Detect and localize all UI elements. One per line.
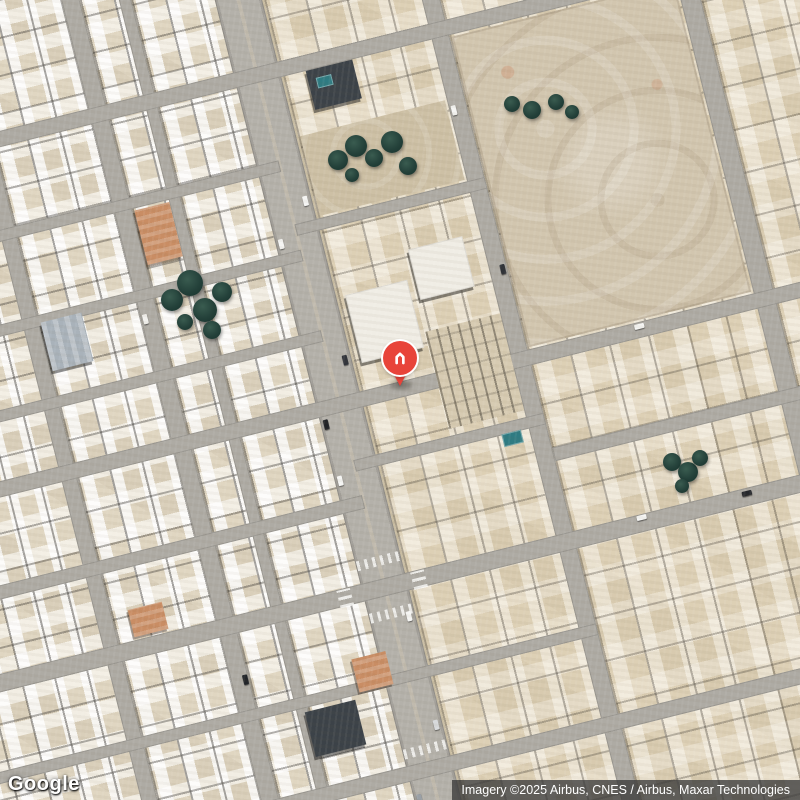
crosswalk — [369, 603, 414, 623]
google-logo[interactable]: Google — [8, 773, 80, 796]
marker-circle — [383, 341, 417, 375]
car — [322, 419, 329, 430]
building-roof-salmon — [351, 651, 393, 692]
vacant-sand-lot — [452, 0, 752, 347]
car — [141, 314, 148, 325]
car — [416, 794, 423, 800]
crosswalk — [356, 551, 401, 571]
attribution-text: Imagery ©2025 Airbus, CNES / Airbus, Max… — [461, 780, 790, 800]
attribution-bar: Imagery ©2025 Airbus, CNES / Airbus, Max… — [452, 780, 800, 800]
car — [450, 105, 457, 116]
map-imagery-layer — [0, 0, 800, 800]
car — [432, 720, 439, 731]
crosswalk — [403, 739, 448, 759]
car — [336, 476, 343, 487]
car — [499, 264, 506, 275]
car — [341, 355, 348, 366]
home-icon — [390, 348, 410, 368]
building-roof-salmon — [134, 202, 182, 265]
car — [301, 196, 308, 207]
pool — [316, 74, 334, 89]
car — [277, 239, 284, 250]
satellite-map[interactable]: Google Imagery ©2025 Airbus, CNES / Airb… — [0, 0, 800, 800]
car — [405, 611, 412, 622]
